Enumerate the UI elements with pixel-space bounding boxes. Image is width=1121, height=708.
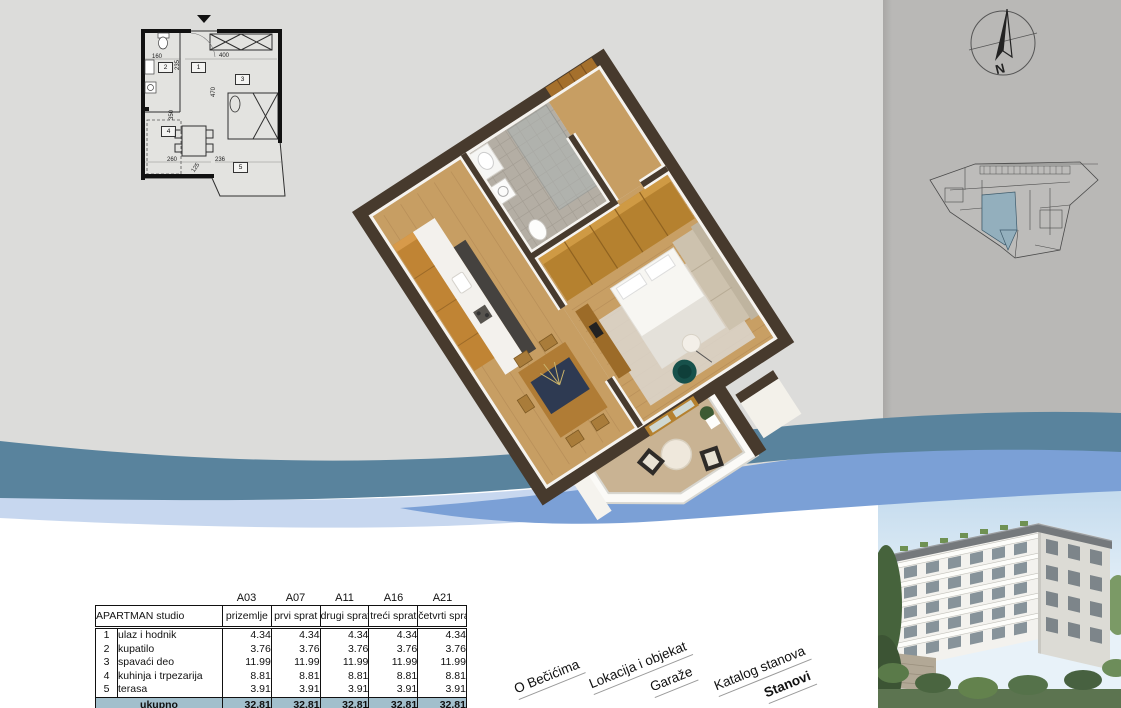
site-plan xyxy=(920,150,1105,285)
floor-label: drugi sprat xyxy=(320,606,369,628)
room-name: ulaz i hodnik xyxy=(118,628,223,643)
area-table: A03A07A11A16A21 APARTMAN studio prizemlj… xyxy=(95,592,467,708)
unit-code-A21: A21 xyxy=(418,592,467,604)
room-name: spavaći deo xyxy=(118,656,223,670)
compass-north-label: N xyxy=(994,60,1007,77)
table-row: 5terasa3.913.913.913.913.91 xyxy=(96,683,467,697)
area-value: 11.99 xyxy=(320,656,369,670)
floor-label: treći sprat xyxy=(369,606,418,628)
area-value: 3.91 xyxy=(223,683,272,697)
floor-plan: 160 235 400 470 350 260 236 125 1 2 3 4 … xyxy=(125,12,287,202)
area-value: 11.99 xyxy=(369,656,418,670)
apartment-area-table: APARTMAN studio prizemljeprvi spratdrugi… xyxy=(95,605,467,708)
total-value: 32.81 xyxy=(418,697,467,708)
room-number-box: 2 xyxy=(158,62,173,73)
area-value: 11.99 xyxy=(223,656,272,670)
unit-code-A16: A16 xyxy=(369,592,418,604)
total-label: ukupno xyxy=(96,697,223,708)
floor-label: prizemlje xyxy=(223,606,272,628)
area-value: 3.91 xyxy=(271,683,320,697)
area-value: 3.91 xyxy=(320,683,369,697)
area-value: 4.34 xyxy=(418,628,467,643)
area-value: 4.34 xyxy=(369,628,418,643)
floor-plan-dimension: 350 xyxy=(169,110,175,120)
apartment-type-label: APARTMAN studio xyxy=(96,606,223,628)
floor-label: prvi sprat xyxy=(271,606,320,628)
floor-plan-dimension: 160 xyxy=(152,54,162,60)
area-value: 3.76 xyxy=(369,643,418,657)
total-row: ukupno 32.8132.8132.8132.8132.81 xyxy=(96,697,467,708)
table-header-row: APARTMAN studio prizemljeprvi spratdrugi… xyxy=(96,606,467,628)
area-value: 11.99 xyxy=(418,656,467,670)
area-value: 4.34 xyxy=(223,628,272,643)
area-value: 4.34 xyxy=(271,628,320,643)
area-table-body: 1ulaz i hodnik4.344.344.344.344.342kupat… xyxy=(96,628,467,698)
row-number: 3 xyxy=(96,656,118,670)
table-row: 1ulaz i hodnik4.344.344.344.344.34 xyxy=(96,628,467,643)
row-number: 1 xyxy=(96,628,118,643)
area-value: 3.76 xyxy=(320,643,369,657)
building-rendering xyxy=(878,455,1121,708)
area-value: 8.81 xyxy=(320,670,369,684)
entrance-arrow-icon xyxy=(197,15,211,23)
floor-label: četvrti sprat xyxy=(418,606,467,628)
unit-code-A03: A03 xyxy=(222,592,271,604)
floor-plan-dimension: 260 xyxy=(167,157,177,163)
area-value: 4.34 xyxy=(320,628,369,643)
area-value: 3.91 xyxy=(369,683,418,697)
floor-plan-drawing xyxy=(125,12,287,202)
floor-plan-dimension: 400 xyxy=(219,53,229,59)
room-number-box: 4 xyxy=(161,126,176,137)
area-value: 8.81 xyxy=(223,670,272,684)
total-value: 32.81 xyxy=(320,697,369,708)
table-row: 3spavaći deo11.9911.9911.9911.9911.99 xyxy=(96,656,467,670)
room-name: kupatilo xyxy=(118,643,223,657)
area-value: 8.81 xyxy=(369,670,418,684)
table-row: 4kuhinja i trpezarija8.818.818.818.818.8… xyxy=(96,670,467,684)
compass-icon: N xyxy=(965,5,1040,80)
unit-code-A11: A11 xyxy=(320,592,369,604)
area-value: 3.76 xyxy=(223,643,272,657)
area-value: 11.99 xyxy=(271,656,320,670)
area-value: 3.91 xyxy=(418,683,467,697)
floor-plan-dimension: 235 xyxy=(175,60,181,70)
row-number: 2 xyxy=(96,643,118,657)
row-number: 4 xyxy=(96,670,118,684)
apartment-3d-view xyxy=(330,5,830,550)
total-value: 32.81 xyxy=(223,697,272,708)
total-value: 32.81 xyxy=(271,697,320,708)
room-name: kuhinja i trpezarija xyxy=(118,670,223,684)
catalog-page: 160 235 400 470 350 260 236 125 1 2 3 4 … xyxy=(0,0,1121,708)
room-number-box: 5 xyxy=(233,162,248,173)
floor-plan-dimension: 236 xyxy=(215,157,225,163)
row-number: 5 xyxy=(96,683,118,697)
area-value: 3.76 xyxy=(418,643,467,657)
unit-code-A07: A07 xyxy=(271,592,320,604)
area-value: 8.81 xyxy=(418,670,467,684)
room-number-box: 1 xyxy=(191,62,206,73)
area-value: 3.76 xyxy=(271,643,320,657)
table-row: 2kupatilo3.763.763.763.763.76 xyxy=(96,643,467,657)
area-value: 8.81 xyxy=(271,670,320,684)
nav-link-o-be-i-ima[interactable]: O Bečićima xyxy=(512,655,586,700)
unit-codes-row: A03A07A11A16A21 xyxy=(222,592,467,604)
room-name: terasa xyxy=(118,683,223,697)
total-value: 32.81 xyxy=(369,697,418,708)
room-number-box: 3 xyxy=(235,74,250,85)
floor-plan-dimension: 470 xyxy=(211,87,217,97)
